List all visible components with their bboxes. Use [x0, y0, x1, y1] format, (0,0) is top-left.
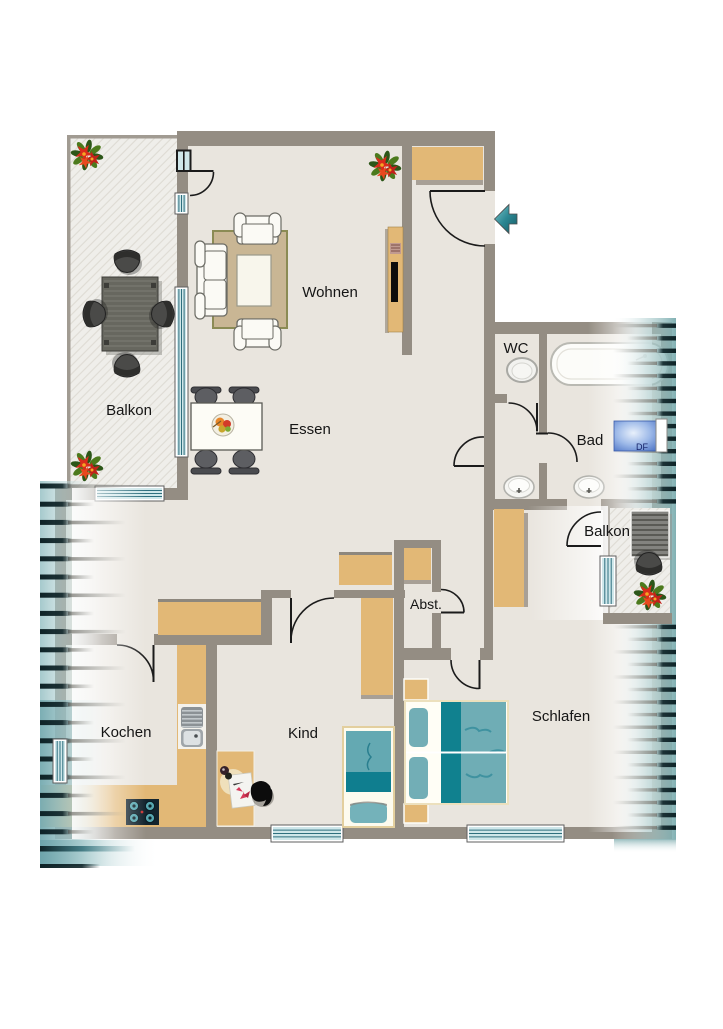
svg-text:WC: WC [504, 340, 529, 357]
svg-text:Bad: Bad [577, 432, 604, 449]
svg-text:Schlafen: Schlafen [532, 708, 590, 725]
svg-text:Balkon: Balkon [584, 523, 630, 540]
svg-text:Balkon: Balkon [106, 402, 152, 419]
svg-text:Wohnen: Wohnen [302, 284, 358, 301]
svg-text:DF: DF [636, 442, 648, 452]
svg-text:Kochen: Kochen [101, 724, 152, 741]
svg-text:Essen: Essen [289, 421, 331, 438]
svg-text:Abst.: Abst. [410, 596, 442, 612]
svg-text:Kind: Kind [288, 725, 318, 742]
